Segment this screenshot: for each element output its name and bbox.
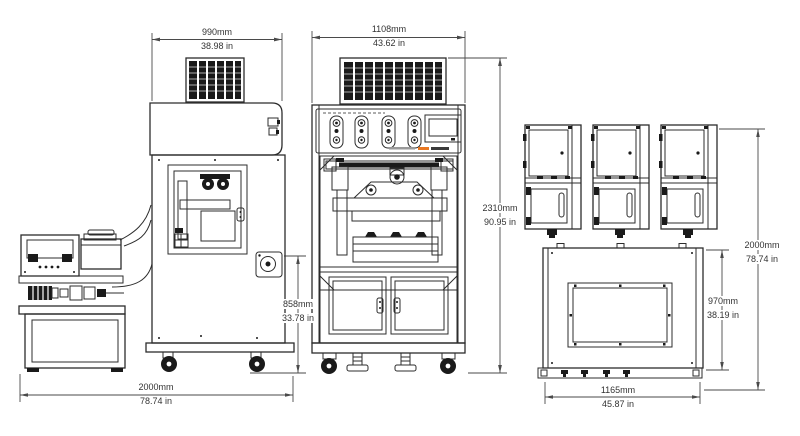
fluid-tank [81,230,121,269]
dim-bench-height: 858mm 33.78 in [281,299,315,323]
side-base-and-casters [146,343,294,372]
dim-inch: 78.74 in [139,396,173,406]
dim-inch: 90.95 in [483,217,517,227]
controller-box [21,235,79,276]
dim-inch: 78.74 in [745,254,779,264]
front-vent-grille [340,58,446,104]
dim-mm: 2000mm [137,382,174,392]
dim-plan-depth: 970mm 38.19 in [706,296,740,320]
dim-inch: 33.78 in [281,313,315,323]
plan-window [568,283,672,347]
dim-overall-width: 2000mm 78.74 in [137,382,174,406]
panel-screen [425,115,461,142]
side-view-machine [145,50,305,380]
front-view-machine [305,55,480,380]
door-detail-1 [523,125,581,238]
dim-total-height: 2310mm 90.95 in [481,203,518,227]
dim-plan-width: 1165mm 45.87 in [600,385,636,409]
lower-table [353,232,438,262]
plan-view [535,240,720,388]
dim-mm: 970mm [707,296,739,306]
machine-head [150,103,282,155]
side-window-mechanism [175,174,244,247]
pump-assembly [19,276,124,300]
dim-inch: 43.62 in [372,38,406,48]
side-vent-grille [186,58,244,102]
panel-gauges [330,116,421,148]
dim-mm: 2310mm [481,203,518,213]
cart-table [19,306,125,372]
door-detail-2 [591,125,649,238]
dim-side-width: 990mm 38.98 in [200,27,234,51]
dim-overall-depth: 2000mm 78.74 in [743,240,780,264]
side-motor [256,252,282,277]
dim-mm: 990mm [201,27,233,37]
dim-inch: 38.98 in [200,41,234,51]
pump-cart-view [12,230,144,374]
plan-front-strip [538,368,702,378]
dim-mm: 2000mm [743,240,780,250]
dim-mm: 1165mm [600,385,636,395]
dim-front-width: 1108mm 43.62 in [371,24,407,48]
dim-mm: 1108mm [371,24,407,34]
press-section [320,156,457,290]
control-panel [316,109,461,153]
cabinet-doors [320,272,457,343]
door-detail-3 [659,125,717,238]
panel-brand-mark [389,147,449,150]
technical-drawing-canvas: 990mm 38.98 in 1108mm 43.62 in 2310mm 90… [0,0,800,436]
dim-mm: 858mm [282,299,314,309]
dim-inch: 38.19 in [706,310,740,320]
door-detail-views [522,122,722,242]
front-base-casters-feet [312,343,465,374]
dim-inch: 45.87 in [601,399,635,409]
